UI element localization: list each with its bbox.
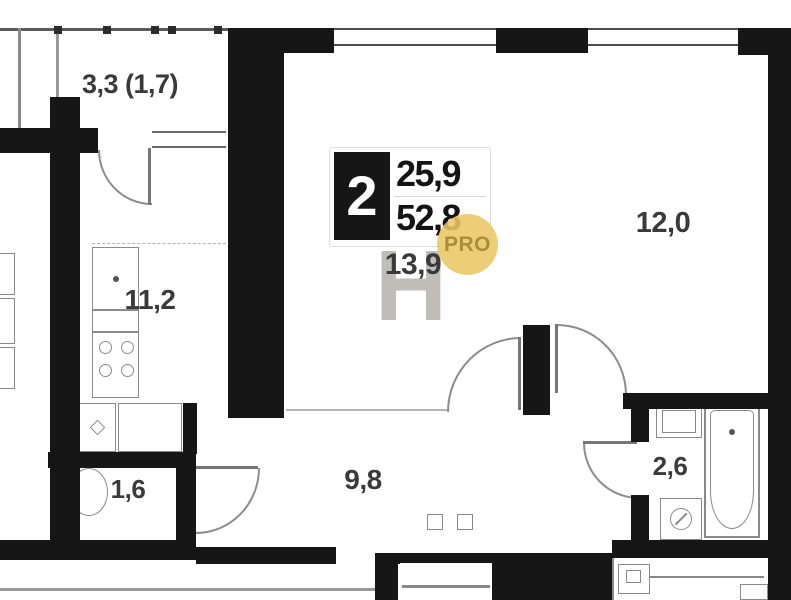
living-door-arc	[447, 337, 521, 412]
kitchen-balcony-window	[152, 131, 226, 148]
balcony-glazing-left	[18, 28, 21, 130]
room-label-kitchen: 11,2	[110, 283, 190, 317]
entry-door-line	[402, 585, 490, 588]
living-corridor-boundary-line	[286, 409, 447, 411]
wall-bottom-left	[0, 540, 196, 560]
living-door-leaf	[518, 337, 521, 410]
mullion-tick	[103, 26, 111, 34]
pro-watermark-badge: PRO	[437, 214, 498, 275]
bathtub-inner	[710, 410, 754, 529]
mullion-tick	[54, 26, 62, 34]
neighbor-fixture	[0, 347, 15, 389]
stove-burner	[121, 341, 134, 354]
wall-bottom-mid	[196, 547, 336, 564]
room-label-bathroom: 2,6	[642, 451, 698, 481]
room-label-balcony: 3,3 (1,7)	[60, 66, 200, 102]
bedroom-window	[588, 28, 738, 46]
lower-unit-sink-basin	[626, 570, 641, 583]
lower-unit-wall-line	[612, 558, 614, 600]
wall-bathroom-bottom	[612, 540, 768, 558]
wall-wc-top	[48, 452, 180, 468]
bathroom-sink-basin	[662, 410, 696, 433]
bathroom-door-leaf	[583, 441, 637, 444]
bedroom-door-arc	[557, 324, 627, 395]
common-hall-line	[0, 588, 375, 591]
balcony-door-leaf	[148, 148, 151, 205]
wc-door-arc	[196, 468, 260, 534]
wall-bathroom-left-lower	[631, 495, 649, 542]
balcony-glazing-top	[0, 28, 228, 31]
balcony-door-arc	[98, 150, 152, 205]
kitchen-fridge-box	[118, 403, 182, 452]
floorplan-canvas: 3,3 (1,7) 11,2 1,6 9,8 12,0 2,6 2 25,9 5…	[0, 0, 791, 600]
balcony-divider-line	[56, 31, 59, 97]
wall-kitchen-stub	[183, 403, 197, 454]
mullion-tick	[214, 26, 222, 34]
room-label-bedroom: 12,0	[620, 206, 706, 240]
bedroom-door-leaf	[555, 324, 558, 393]
kitchen-counter-dashed-line	[92, 243, 226, 244]
wc-door-leaf	[196, 466, 258, 469]
wall-left-exterior	[50, 97, 80, 558]
wall-living-bedroom-divider	[523, 325, 550, 415]
living-room-window	[334, 28, 496, 46]
mullion-tick	[151, 26, 159, 34]
wall-right-exterior	[768, 28, 791, 600]
wall-bathroom-left-upper	[631, 409, 649, 442]
wall-center-vertical	[228, 50, 284, 418]
wall-entry-right-block	[492, 553, 612, 600]
bathtub-drain-dot	[729, 429, 735, 435]
bathroom-door-arc	[583, 443, 639, 499]
entry-threshold-mark	[457, 514, 473, 530]
lower-unit-fixture	[740, 584, 768, 600]
lower-unit-divider-line	[650, 576, 764, 578]
neighbor-fixture	[0, 253, 15, 295]
wall-left-stub	[0, 128, 98, 153]
kitchen-sink-dot	[113, 276, 119, 282]
room-label-wc: 1,6	[100, 474, 156, 504]
stove-burner	[121, 364, 134, 377]
wall-entry-left-block	[375, 553, 398, 600]
room-label-hallway: 9,8	[330, 464, 396, 496]
rooms-count-badge: 2	[334, 152, 390, 240]
stove-burner	[99, 364, 112, 377]
entry-threshold-mark	[427, 514, 443, 530]
neighbor-fixture	[0, 298, 15, 344]
wall-top-between-windows	[496, 28, 588, 53]
mullion-tick	[168, 26, 176, 34]
wall-bedroom-bathroom	[623, 393, 768, 409]
living-area-value: 25,9	[396, 152, 488, 196]
stove-burner	[99, 341, 112, 354]
